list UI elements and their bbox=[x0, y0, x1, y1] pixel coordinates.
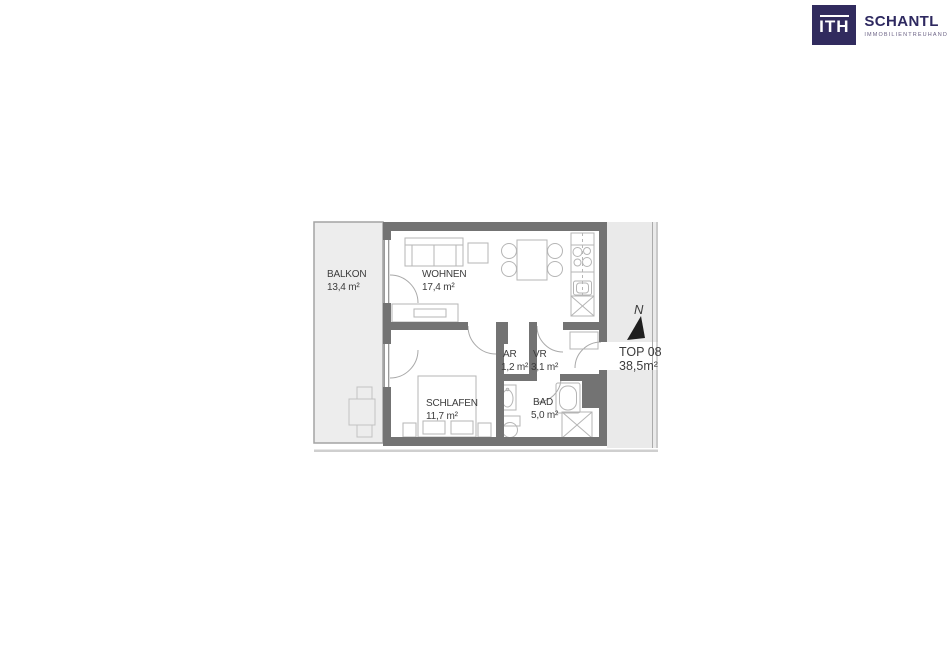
sideboard bbox=[392, 304, 458, 322]
sofa bbox=[405, 238, 463, 266]
door-arc-balcony-wohnen bbox=[390, 275, 418, 303]
door-arc-entrance bbox=[575, 342, 601, 368]
base-line bbox=[314, 450, 658, 453]
room-label-wohnen: WOHNEN bbox=[422, 269, 466, 280]
bathtub-basin bbox=[560, 386, 577, 410]
wall-bottom bbox=[383, 437, 607, 446]
nightstand bbox=[403, 423, 416, 437]
cooktop-burner bbox=[583, 258, 592, 267]
room-label-ar: AR bbox=[503, 349, 517, 360]
wall-top bbox=[383, 222, 607, 231]
side-table bbox=[468, 243, 488, 263]
room-area-ar: 1,2 m² bbox=[501, 362, 529, 373]
floor-plan-drawing: BALKON 13,4 m² WOHNEN 17,4 m² SCHLAFEN 1… bbox=[0, 0, 950, 671]
wall-kitchen-vr bbox=[563, 322, 599, 330]
wall-shaft bbox=[582, 374, 599, 408]
compass-north-label: N bbox=[634, 302, 644, 317]
door-arc-wohnen-schlafen bbox=[468, 326, 496, 354]
room-label-schlafen: SCHLAFEN bbox=[426, 398, 478, 409]
cooktop-burner bbox=[573, 248, 582, 257]
room-area-balkon: 13,4 m² bbox=[327, 282, 360, 293]
wall-right-upper bbox=[599, 231, 607, 342]
wc-bowl bbox=[503, 423, 518, 438]
room-area-vr: 3,1 m² bbox=[531, 362, 559, 373]
kitchen-tall-cabinet bbox=[571, 296, 594, 316]
unit-area: 38,5m² bbox=[619, 359, 658, 373]
room-area-bad: 5,0 m² bbox=[531, 410, 559, 421]
wall-left-middle bbox=[383, 303, 391, 344]
room-label-vr: VR bbox=[533, 349, 547, 360]
room-area-schlafen: 11,7 m² bbox=[426, 411, 459, 422]
cooktop-burner bbox=[574, 259, 581, 266]
dining-set bbox=[502, 240, 563, 280]
unit-number: TOP 08 bbox=[619, 345, 662, 359]
door-arc-balcony-schlafen bbox=[390, 350, 418, 378]
wall-right-lower bbox=[599, 370, 607, 446]
room-area-wohnen: 17,4 m² bbox=[422, 282, 455, 293]
kitchen-counter bbox=[571, 233, 594, 316]
floor-plan-page: ITH SCHANTL IMMOBILIENTREUHAND bbox=[0, 0, 950, 671]
cooktop-burner bbox=[584, 248, 591, 255]
washing-machine bbox=[562, 412, 592, 438]
wall-left-top bbox=[383, 222, 391, 240]
wall-left-bottom bbox=[383, 387, 391, 437]
wall-wohnen-schlafen bbox=[391, 322, 468, 330]
room-label-balkon: BALKON bbox=[327, 269, 366, 280]
nightstand bbox=[478, 423, 491, 437]
vr-wardrobe bbox=[570, 332, 598, 349]
wall-bad-top-left bbox=[496, 374, 537, 381]
room-label-bad: BAD bbox=[533, 397, 553, 408]
wall-bad-top-right bbox=[560, 374, 584, 381]
